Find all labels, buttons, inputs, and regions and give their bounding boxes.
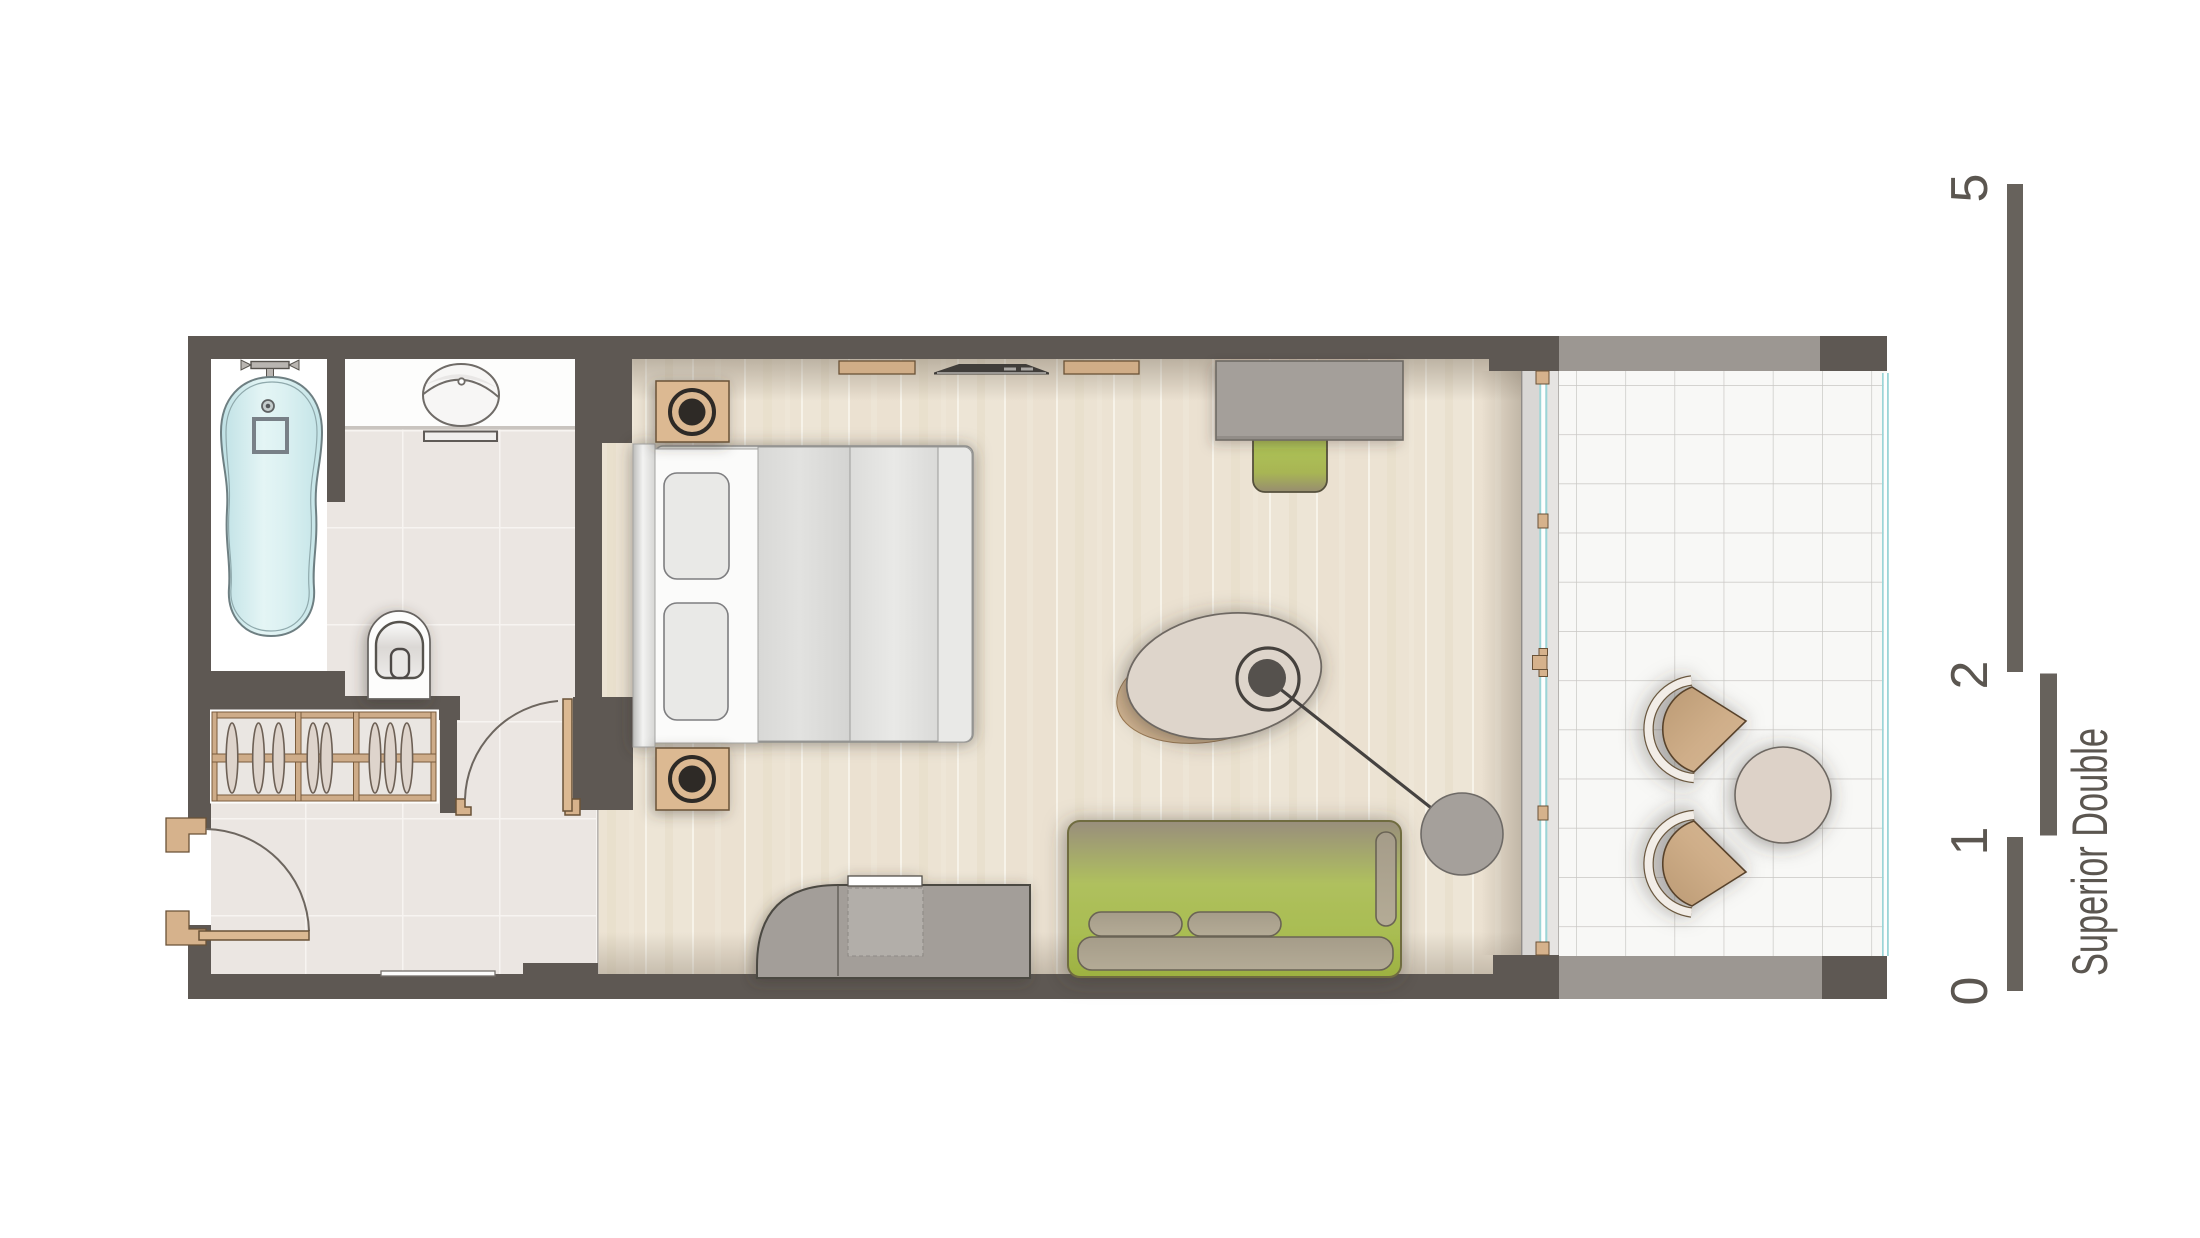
svg-text:1: 1 xyxy=(1941,827,1999,856)
svg-text:0: 0 xyxy=(1941,977,1999,1006)
svg-text:Superior Double: Superior Double xyxy=(2062,728,2118,976)
svg-text:5: 5 xyxy=(1941,174,1999,203)
svg-text:2: 2 xyxy=(1941,661,1999,690)
